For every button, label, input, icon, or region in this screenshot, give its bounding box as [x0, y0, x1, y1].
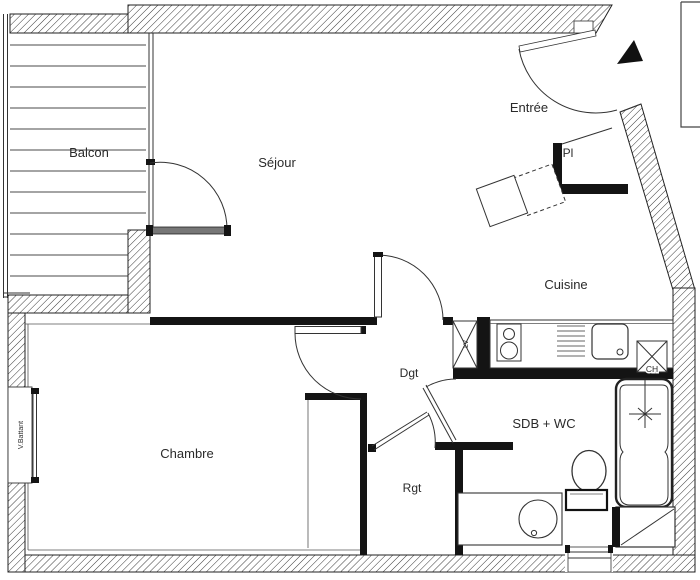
storage-door	[372, 412, 435, 450]
floor-plan: LV CH	[0, 0, 700, 580]
balcony-glass-wall	[149, 33, 153, 233]
sejour-hall-door-leaf	[375, 255, 382, 317]
balcony-door-leaf	[150, 227, 227, 234]
floor-plan-canvas: LV CH	[0, 0, 700, 580]
water-heater-label: CH	[646, 364, 658, 374]
balcony-deck	[10, 45, 146, 276]
bedroom-door-leaf	[295, 327, 361, 334]
bathroom-window	[565, 545, 613, 572]
label-dgt: Dgt	[400, 366, 419, 380]
water-heater: CH	[637, 341, 667, 374]
label-chambre: Chambre	[160, 446, 213, 461]
entry-arrow-icon	[617, 40, 643, 64]
balcony-door	[146, 162, 231, 236]
bedroom-window: V.Battant	[8, 387, 39, 483]
stove	[497, 324, 521, 361]
bath-storage	[612, 507, 675, 547]
sejour-hall-door	[373, 252, 443, 320]
washbasin	[458, 493, 562, 545]
label-rgt: Rgt	[403, 481, 422, 495]
glass-wall-cap	[146, 159, 155, 165]
neighbour-outline	[681, 2, 700, 127]
label-entree: Entrée	[510, 100, 548, 115]
entry-closet	[476, 128, 612, 227]
bathroom-door	[423, 379, 456, 443]
bedroom-door	[295, 327, 361, 400]
label-sdb: SDB + WC	[512, 416, 575, 431]
label-sejour: Séjour	[258, 155, 296, 170]
appliance-box: LV	[453, 321, 477, 368]
sink	[592, 324, 628, 359]
label-balcon: Balcon	[69, 145, 109, 160]
label-cuisine: Cuisine	[544, 277, 587, 292]
appliance-box-label: LV	[463, 340, 470, 348]
inner-face-lines	[25, 324, 360, 550]
bathtub	[616, 379, 672, 507]
bedroom-window-label: V.Battant	[18, 421, 25, 449]
toilet	[566, 451, 607, 511]
label-pl: Pl	[563, 146, 574, 160]
